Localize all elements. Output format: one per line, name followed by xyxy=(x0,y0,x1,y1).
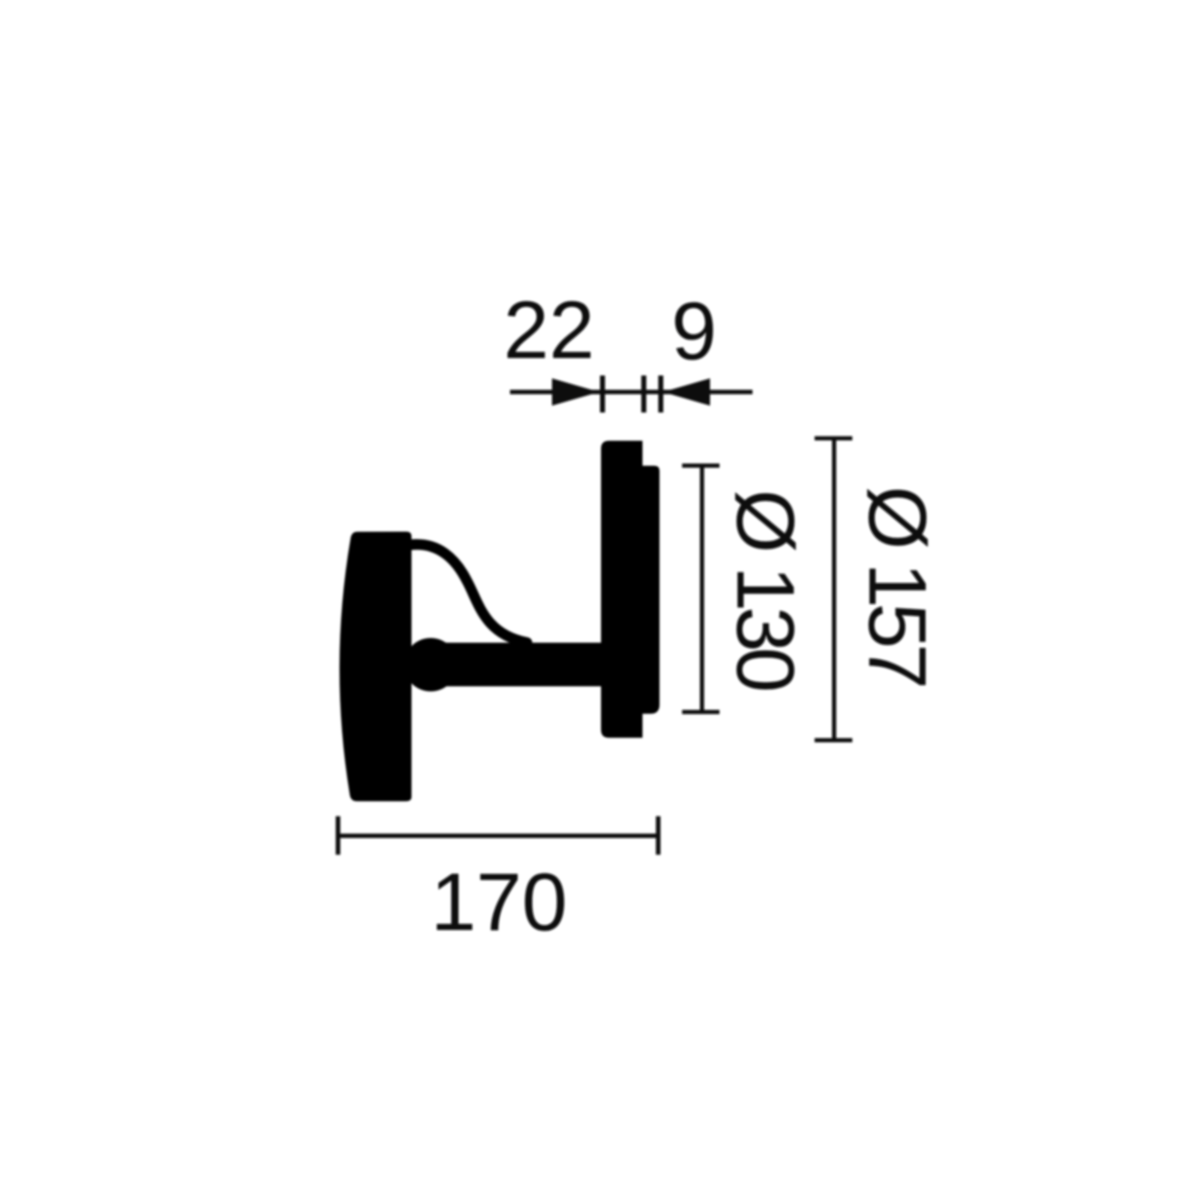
svg-text:Ø 157: Ø 157 xyxy=(852,486,943,686)
svg-text:Ø 130: Ø 130 xyxy=(720,489,811,690)
svg-text:170: 170 xyxy=(431,857,568,948)
svg-text:22: 22 xyxy=(503,285,594,376)
svg-text:9: 9 xyxy=(671,286,717,377)
